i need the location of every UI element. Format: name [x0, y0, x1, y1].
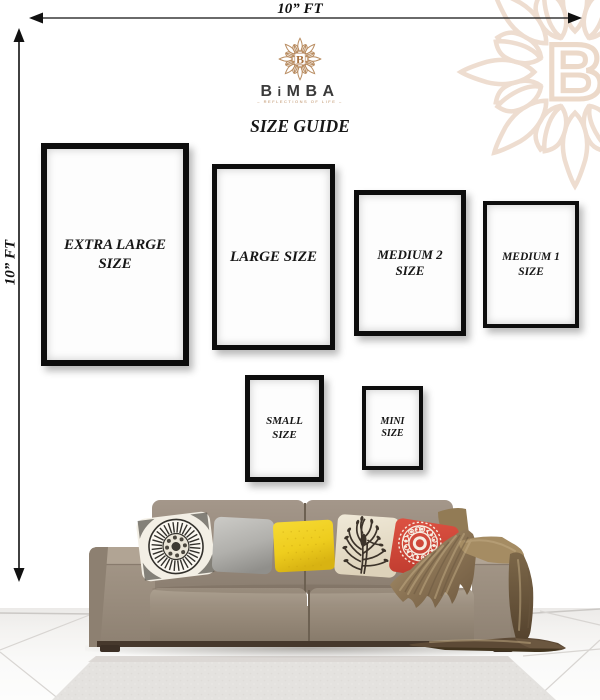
svg-text:B: B	[546, 27, 600, 116]
svg-text:B: B	[296, 52, 304, 66]
